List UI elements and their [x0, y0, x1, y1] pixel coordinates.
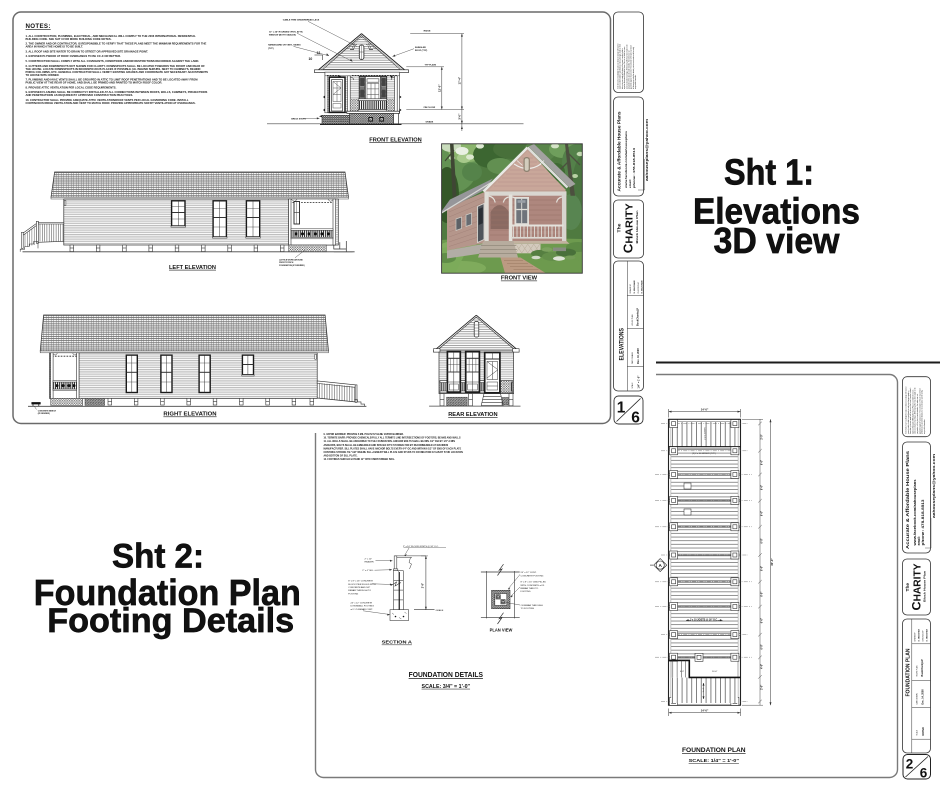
svg-text:Accurate & Affordable House Pl: Accurate & Affordable House Plans	[617, 111, 622, 192]
svg-text:8. PROVIDE ATTIC VENTILATION: 8. PROVIDE ATTIC VENTILATION PER LOCAL C…	[26, 85, 117, 89]
svg-text:SECTION A: SECTION A	[382, 640, 413, 646]
svg-text:TO HOUSE WITH OWNER.: TO HOUSE WITH OWNER.	[26, 73, 60, 77]
svg-text:HEADER: HEADER	[365, 561, 375, 564]
svg-text:14'-0": 14'-0"	[701, 407, 709, 411]
svg-text:11. ALL WALLS SHALL BE ANCHOR: 11. ALL WALLS SHALL BE ANCHORED TO THE F…	[324, 440, 456, 443]
svg-text:Footing Details: Footing Details	[47, 602, 294, 640]
svg-text:DRAWN BY: DRAWN BY	[629, 283, 632, 293]
svg-text:6'-0": 6'-0"	[761, 592, 764, 597]
svg-text:TYP PLATE: TYP PLATE	[425, 63, 437, 66]
svg-text:ROOF (TYP): ROOF (TYP)	[415, 50, 428, 52]
svg-text:4. EXPOSED PLYWOOD AT ROOF OV: 4. EXPOSED PLYWOOD AT ROOF OVERHANGS TO …	[26, 54, 122, 58]
svg-text:The: The	[616, 223, 622, 232]
svg-text:FRONT PORCH: FRONT PORCH	[279, 262, 294, 264]
svg-text:5. CONSTRUCTION SHALL COMPLY: 5. CONSTRUCTION SHALL COMPLY WITH ALL CO…	[26, 59, 200, 63]
svg-text:The: The	[905, 582, 910, 591]
svg-text:S. VAUGHAN: S. VAUGHAN	[918, 629, 921, 642]
svg-text:BookCharityLP: BookCharityLP	[921, 659, 924, 677]
svg-text:phone: 478-818-8513: phone: 478-818-8513	[921, 499, 925, 545]
svg-text:PLAN VIEW: PLAN VIEW	[490, 628, 513, 633]
svg-text:6'-0": 6'-0"	[761, 644, 764, 649]
svg-text:2'-8": 2'-8"	[422, 582, 425, 588]
svg-text:9. VAPOR BARRIER: PROVIDE 6: 9. VAPOR BARRIER: PROVIDE 6 MIL POLYETHY…	[324, 433, 405, 436]
svg-text:#5 REBAR THROUGH: #5 REBAR THROUGH	[521, 604, 544, 607]
svg-text:12'-0": 12'-0"	[437, 84, 441, 92]
svg-text:3'-0": 3'-0"	[457, 113, 461, 120]
svg-text:FOUNDATION DETAILS: FOUNDATION DETAILS	[409, 670, 483, 679]
svg-text:DRAWN BY: DRAWN BY	[914, 632, 917, 642]
svg-text:2'-0": 2'-0"	[761, 685, 764, 690]
svg-text:6: 6	[920, 766, 928, 781]
svg-text:Block House Plan: Block House Plan	[923, 571, 927, 602]
svg-text:BRICK STEPS: BRICK STEPS	[291, 119, 306, 121]
svg-text:6'-0": 6'-0"	[761, 511, 764, 516]
svg-text:ANCHORS, BOLTS SHALL BE EMBED: ANCHORS, BOLTS SHALL BE EMBEDDED AND SPA…	[324, 444, 449, 447]
svg-text:REAR ELEVATION: REAR ELEVATION	[448, 412, 497, 418]
svg-text:6'-0": 6'-0"	[761, 460, 764, 465]
svg-text:10: 10	[309, 57, 313, 61]
svg-text:6'-0": 6'-0"	[761, 566, 764, 571]
svg-text:Accurate & Affordable House Pl: Accurate & Affordable House Plans	[905, 450, 910, 549]
svg-text:DATE DRAWN: DATE DRAWN	[916, 693, 919, 705]
svg-text:S. VAUGHAN: S. VAUGHAN	[641, 280, 644, 293]
svg-text:LATTICE WORK AROUND: LATTICE WORK AROUND	[279, 258, 303, 261]
svg-text:2" x 4" SILL: 2" x 4" SILL	[362, 570, 374, 572]
svg-text:RIGHT ELEVATION: RIGHT ELEVATION	[163, 412, 216, 418]
svg-text:2 x 6 JOISTS: 2 x 6 JOISTS	[705, 427, 707, 440]
svg-text:NOTES:: NOTES:	[26, 23, 51, 30]
svg-text:HARDBOARD OR VINYL SIDING: HARDBOARD OR VINYL SIDING	[268, 44, 301, 47]
svg-text:1: 1	[617, 400, 626, 417]
svg-text:LEFT ELEVATION: LEFT ELEVATION	[169, 265, 216, 271]
svg-text:NOTED: NOTED	[922, 727, 925, 736]
svg-text:CHARITY: CHARITY	[910, 563, 924, 610]
svg-text:8" x 8" x 16" CMU FILLED: 8" x 8" x 16" CMU FILLED	[521, 582, 547, 584]
svg-text:Sht 2:: Sht 2:	[112, 538, 204, 576]
svg-text:REBAR THRU TO: REBAR THRU TO	[521, 587, 539, 590]
svg-text:30'-0": 30'-0"	[770, 558, 774, 566]
svg-text:GABLE TRIM GINGERBREAD LACE: GABLE TRIM GINGERBREAD LACE	[283, 19, 320, 22]
svg-text:FRONT VIEW: FRONT VIEW	[501, 276, 538, 282]
svg-text:DOWNWALL FOOTING: DOWNWALL FOOTING	[351, 605, 375, 608]
svg-text:SHINGLED: SHINGLED	[415, 47, 427, 49]
svg-text:SCALE: 1/4" = 1'-0": SCALE: 1/4" = 1'-0"	[689, 758, 739, 764]
svg-text:CONCRETE AND 5/8": CONCRETE AND 5/8"	[348, 586, 370, 589]
svg-text:AND BOTTOM OF SILL PLATE.: AND BOTTOM OF SILL PLATE.	[324, 455, 358, 458]
svg-text:PUBLIC VIEW AT THE REAR OF HO: PUBLIC VIEW AT THE REAR OF HOME, AND SHA…	[26, 81, 163, 85]
svg-text:w/ 2 #5 REBAR CONT.: w/ 2 #5 REBAR CONT.	[351, 608, 374, 611]
svg-text:12. FOOTINGS SHOULD EXTEND 12: 12. FOOTINGS SHOULD EXTEND 12" INTO UNDI…	[324, 459, 396, 461]
svg-text:AND PENETRATIONS AS REQUIRED B: AND PENETRATIONS AS REQUIRED BY APPROVED…	[26, 93, 134, 97]
svg-text:GRADE: GRADE	[436, 609, 444, 612]
svg-text:Dec. 16, 2008: Dec. 16, 2008	[637, 348, 640, 364]
svg-text:TO FOOTING: TO FOOTING	[521, 608, 535, 610]
svg-text:HOUSE PLAN: HOUSE PLAN	[916, 665, 919, 677]
svg-text:GRADE: GRADE	[426, 120, 434, 123]
svg-text:24" x 12" CONCRETE: 24" x 12" CONCRETE	[351, 603, 373, 605]
svg-text:Sht 1:: Sht 1:	[724, 151, 814, 192]
svg-text:14'-0": 14'-0"	[701, 708, 709, 712]
svg-text:2: 2	[906, 757, 914, 772]
svg-text:RIDGE: RIDGE	[424, 31, 431, 33]
svg-text:FOOTING: FOOTING	[521, 591, 531, 593]
svg-text:FRONT ELEVATION: FRONT ELEVATION	[369, 137, 422, 143]
svg-text:FOUNDATION (IF DESIRED): FOUNDATION (IF DESIRED)	[279, 264, 305, 267]
svg-text:aahouseplans@yahoo.com: aahouseplans@yahoo.com	[645, 119, 649, 181]
svg-text:WITH CONCRETE w/#5: WITH CONCRETE w/#5	[521, 585, 545, 587]
svg-text:BUILDING CODE. SEE SHT 3 FOR M: BUILDING CODE. SEE SHT 3 FOR MORE BUILDI…	[26, 37, 112, 41]
svg-text:S. VAUGHAN: S. VAUGHAN	[633, 280, 636, 293]
svg-text:6'-0": 6'-0"	[761, 618, 764, 623]
svg-text:(2) 2 x 10 GIRDER (TYP.): (2) 2 x 10 GIRDER (TYP.)	[692, 453, 716, 455]
svg-text:FOUNDATION PLAN: FOUNDATION PLAN	[905, 649, 911, 697]
svg-text:17'-4": 17'-4"	[457, 76, 461, 84]
svg-text:aahouseplans@yahoo.com: aahouseplans@yahoo.com	[932, 454, 936, 518]
svg-text:10'-0": 10'-0"	[712, 671, 718, 673]
svg-text:10. TERMITE BARR: PROVIDE CH: 10. TERMITE BARR: PROVIDE CHEMICALS/FULL…	[324, 437, 461, 440]
svg-text:MANUFACTURER. SILL PLATES SHA: MANUFACTURER. SILL PLATES SHALL HAVE ANC…	[324, 447, 462, 450]
svg-text:HOUSE PLAN: HOUSE PLAN	[631, 314, 634, 326]
svg-text:2'-0": 2'-0"	[761, 434, 764, 439]
svg-text:CONTINUOUS RIDGE VENTILATION A: CONTINUOUS RIDGE VENTILATION AND VENT TO…	[26, 101, 196, 105]
svg-text:2" x 10": 2" x 10"	[365, 558, 373, 560]
svg-text:4'-0": 4'-0"	[761, 664, 764, 669]
svg-text:SCALE: SCALE	[631, 382, 634, 389]
svg-text:CONTINUE STRONG TIE "AB" WHERE: CONTINUE STRONG TIE "AB" WHERE SILL+CEME…	[324, 451, 464, 454]
svg-text:FOUNDATION PLAN: FOUNDATION PLAN	[682, 747, 746, 754]
svg-text:REBAR THROUGH TO: REBAR THROUGH TO	[348, 589, 371, 592]
svg-text:(IF DESIRED): (IF DESIRED)	[38, 413, 51, 415]
svg-text:BookCharityLP: BookCharityLP	[637, 308, 640, 326]
svg-text:AREA IN WHICH THE HOME IS TO B: AREA IN WHICH THE HOME IS TO BE BUILT.	[26, 45, 84, 49]
svg-text:6'-0": 6'-0"	[761, 485, 764, 490]
svg-text:ELEVATIONS: ELEVATIONS	[618, 328, 625, 361]
svg-text:CONCRETE FOOTING: CONCRETE FOOTING	[521, 575, 544, 577]
svg-text:CHECKED BY: CHECKED BY	[923, 630, 925, 642]
svg-text:FIN FLOOR: FIN FLOOR	[424, 107, 436, 109]
svg-text:12" x 24" ROUNDED VINYL ATTIC: 12" x 24" ROUNDED VINYL ATTIC	[269, 30, 304, 33]
svg-text:3. ALL ROOF AND SITE WATER TO: 3. ALL ROOF AND SITE WATER TO DRAIN TO S…	[26, 49, 149, 53]
svg-text:1/4" = 1'-0": 1/4" = 1'-0"	[638, 375, 641, 389]
svg-text:SCALE: 3/4" = 1'-0": SCALE: 3/4" = 1'-0"	[422, 684, 471, 690]
svg-text:(TYP): (TYP)	[268, 48, 274, 50]
svg-text:SCALE: SCALE	[916, 729, 919, 735]
svg-text:8" x 8" x 16" CONCRETE: 8" x 8" x 16" CONCRETE	[348, 581, 373, 583]
svg-text:DATE DRAWN: DATE DRAWN	[631, 351, 634, 364]
svg-text:4'-0": 4'-0"	[680, 671, 684, 673]
svg-text:phone: 478-818-8513: phone: 478-818-8513	[632, 148, 636, 188]
svg-text:6: 6	[631, 410, 640, 427]
svg-text:BLOCK PIER FILLED WITH: BLOCK PIER FILLED WITH	[348, 584, 376, 586]
svg-text:Dec. 14, 2008: Dec. 14, 2008	[922, 689, 925, 705]
svg-text:3D view: 3D view	[714, 220, 841, 261]
svg-text:6'-0": 6'-0"	[761, 538, 764, 543]
svg-text:CONCRETE BENCH: CONCRETE BENCH	[38, 410, 57, 412]
svg-text:CHECKED BY: CHECKED BY	[638, 281, 640, 293]
svg-text:WINDOW (BOTH GABLES): WINDOW (BOTH GABLES)	[269, 34, 296, 37]
svg-text:Block House Plan: Block House Plan	[635, 210, 639, 243]
svg-text:FOOTING: FOOTING	[348, 593, 358, 595]
svg-text:24" x 12" CONT.: 24" x 12" CONT.	[521, 572, 537, 574]
svg-text:S. VAUGHAN: S. VAUGHAN	[926, 629, 929, 642]
